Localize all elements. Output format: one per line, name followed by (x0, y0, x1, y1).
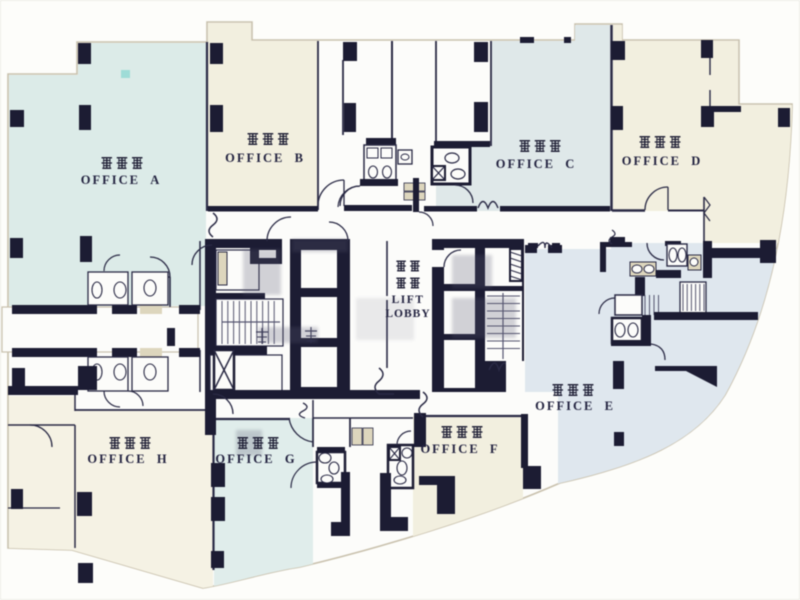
svg-text:OFFICE G: OFFICE G (215, 452, 296, 466)
svg-text:OFFICE H: OFFICE H (87, 452, 168, 466)
svg-text:LIFT: LIFT (392, 294, 425, 306)
svg-text:OFFICE F: OFFICE F (420, 442, 499, 456)
svg-text:OFFICE B: OFFICE B (225, 151, 305, 165)
svg-text:OFFICE E: OFFICE E (535, 399, 615, 413)
svg-text:OFFICE C: OFFICE C (496, 157, 577, 171)
svg-text:LOBBY: LOBBY (385, 308, 430, 320)
svg-text:OFFICE D: OFFICE D (622, 154, 703, 168)
svg-text:OFFICE A: OFFICE A (81, 173, 162, 187)
